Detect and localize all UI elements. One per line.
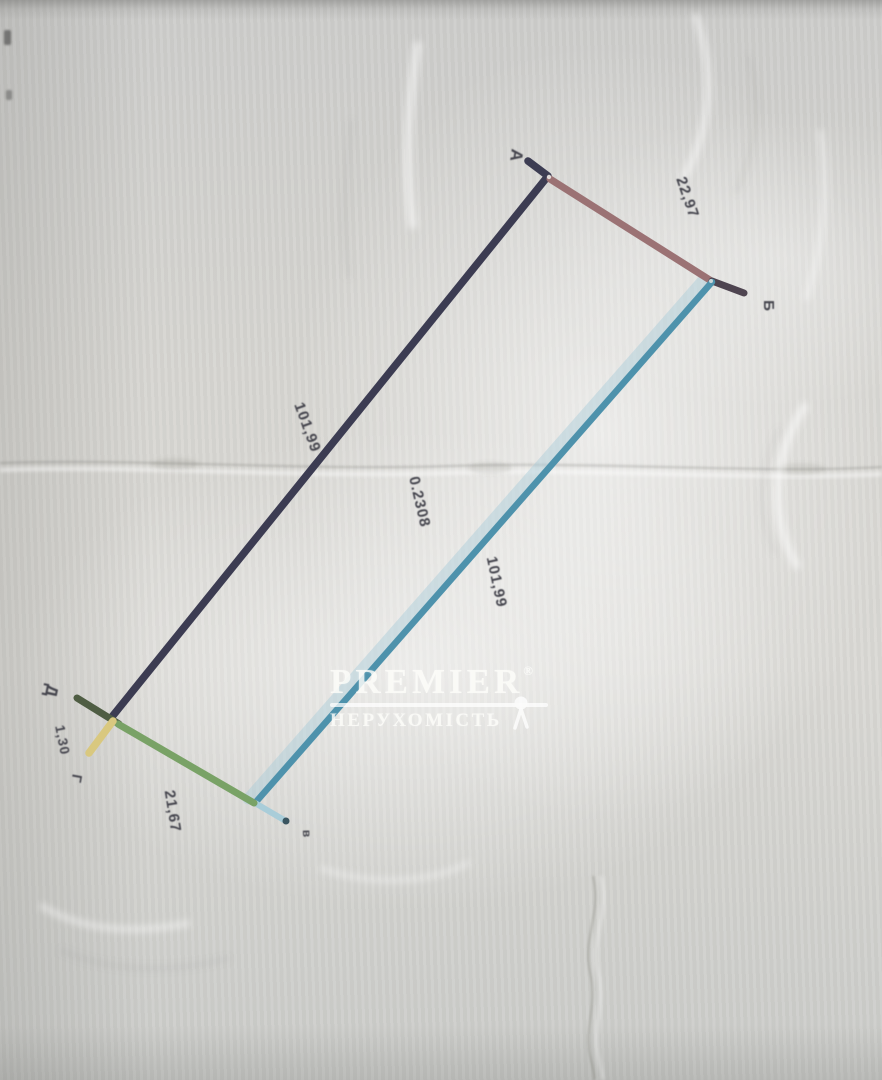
boundary-line-bv-tick (255, 803, 284, 820)
key-icon (509, 694, 533, 734)
watermark-brand: PREMIER® (330, 664, 580, 699)
paper-wrinkle (408, 42, 418, 228)
length-label-gd: 1,30 (52, 724, 73, 757)
boundary-line-vg (118, 724, 254, 803)
paper-crease-knot (468, 462, 512, 474)
survey-plan: А Б в Д Г 22,97 101,99 0.2308 101,99 21,… (0, 0, 882, 1080)
paper-creases (0, 14, 882, 1080)
paper-crease-wavy-bottom (588, 876, 595, 1080)
point-label-b: Б (760, 300, 777, 312)
photo-of-survey-plan: А Б в Д Г 22,97 101,99 0.2308 101,99 21,… (0, 0, 882, 1080)
registered-trademark-icon: ® (523, 663, 533, 678)
length-label-da: 101,99 (290, 400, 324, 455)
paper-wrinkle (320, 862, 470, 880)
paper-wrinkle (60, 950, 230, 968)
paper-wrinkle (736, 55, 756, 193)
point-label-a: А (506, 148, 527, 164)
corner-notch-a (547, 175, 551, 179)
paper-crease-knot (151, 458, 199, 470)
boundary-line-gd (89, 721, 113, 753)
point-label-d: Д (41, 683, 62, 700)
watermark-subtitle: НЕРУХОМІСТЬ (330, 710, 502, 732)
paper-wrinkle (806, 130, 824, 300)
boundary-line-bv-tick-cap (283, 818, 290, 825)
watermark-brand-text: PREMIER (330, 662, 523, 701)
paper-crease-horizontal-highlight (0, 469, 882, 476)
length-label-bv: 101,99 (483, 555, 510, 609)
area-label: 0.2308 (405, 475, 433, 529)
corner-notch-b (709, 279, 713, 283)
paper-wrinkle (778, 404, 806, 568)
paper-wrinkle (40, 905, 190, 929)
point-label-v: в (300, 829, 314, 838)
boundary-line-ab-tick (712, 281, 744, 293)
paper-wrinkle (683, 14, 708, 179)
paper-wrinkle (345, 120, 352, 278)
paper-crease-wavy-bottom-highlight (596, 876, 603, 1080)
point-label-g: Г (68, 773, 85, 785)
watermark: PREMIER® НЕРУХОМІСТЬ (330, 664, 580, 734)
boundary-line-da (111, 161, 548, 718)
paper-edge-speck (4, 30, 11, 45)
length-label-vg: 21,67 (161, 789, 184, 834)
paper-edge-speck (6, 90, 12, 100)
length-label-ab: 22,97 (672, 175, 702, 221)
